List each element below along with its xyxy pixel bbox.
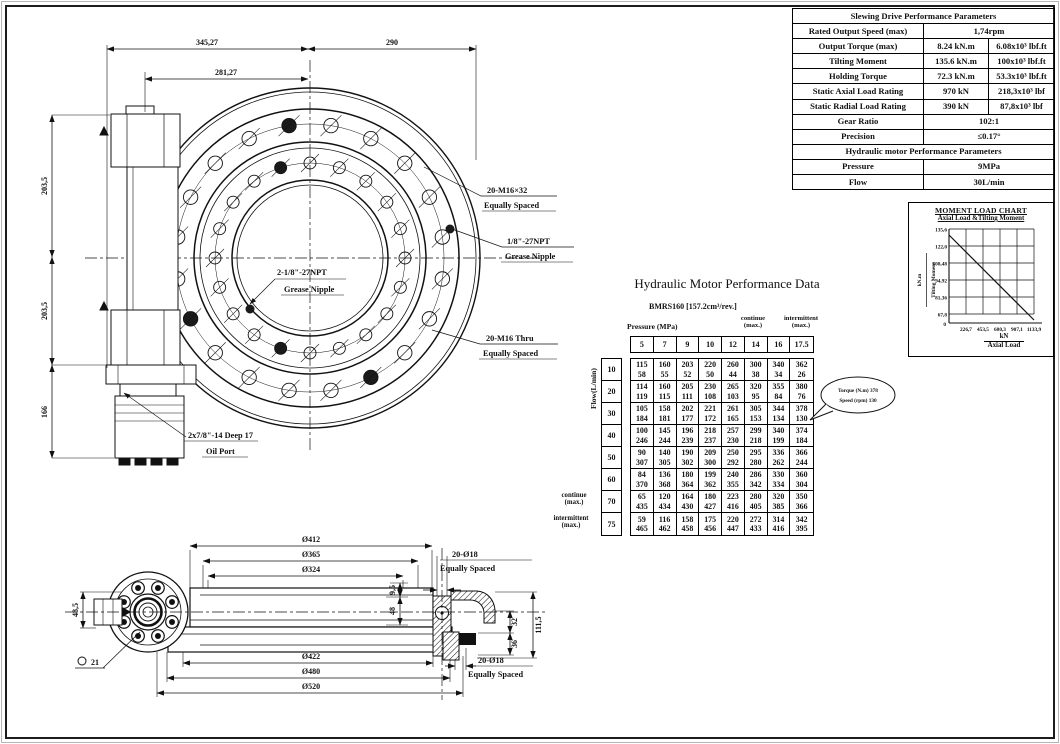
torque-value: 220 [704,360,716,369]
engineering-drawing-sheet: { "perf": { "title": "Slewing Drive Perf… [0,0,1060,744]
speed-value: 103 [727,392,739,401]
speed-value: 177 [681,414,693,423]
speed-value: 181 [659,414,671,423]
grid-cell: 180364 [677,469,700,491]
grid-cell: 202177 [677,403,700,425]
dim-412: Ø412 [302,535,320,544]
speed-value: 52 [683,370,691,379]
dim-324: Ø324 [302,565,320,574]
torque-value: 299 [750,426,762,435]
speed-value: 427 [704,502,716,511]
torque-value: 355 [772,382,784,391]
flow-cell: 30 [602,403,621,425]
callout-speed-text: Speed (rpm) 130 [839,397,877,404]
speed-value: 44 [729,370,737,379]
grid-cell: 145244 [654,425,677,447]
row-value-metric: 970 kN [924,84,989,99]
grid-cell: 35584 [768,381,791,403]
torque-value: 205 [681,382,693,391]
torque-value: 203 [681,360,693,369]
grid-cell: 205111 [677,381,700,403]
torque-value: 265 [727,382,739,391]
torque-value: 330 [772,470,784,479]
label-m16thru-spaced: Equally Spaced [483,349,538,358]
speed-value: 405 [750,502,762,511]
grid-cell: 261165 [722,403,745,425]
label-2018-top: 20-Ø18 [452,550,478,559]
grid-cell: 11558 [631,359,654,381]
label-npt1: 1/8"-27NPT [507,237,550,246]
speed-value: 237 [704,436,716,445]
row-label: Gear Ratio [793,114,924,129]
torque-speed-callout: Torque (N.m) 378 Speed (rpm) 130 [800,370,910,432]
pressure-header-row: 5791012141617.5 [630,336,814,353]
dim-290: 290 [386,38,398,47]
torque-value: 240 [727,470,739,479]
grid-cell: 265103 [722,381,745,403]
perf-table-subheader: Hydraulic motor Performance Parameters [793,144,1055,159]
label-npt1-nipple: Grease Nipple [505,252,556,261]
label-2018-bot: 20-Ø18 [478,656,504,665]
row-value-imperial: 87,8x10³ lbf [989,99,1055,114]
row-value-metric: 8.24 kN.m [924,39,989,54]
torque-value: 90 [638,448,646,457]
torque-value: 160 [659,360,671,369]
grid-cell: 100246 [631,425,654,447]
speed-value: 305 [659,458,671,467]
pressure-header-cell: 7 [654,337,677,352]
torque-value: 65 [638,492,646,501]
speed-value: 246 [636,436,648,445]
grid-cell: 116462 [654,513,677,535]
slewing-drive-top-view: 345,27 290 281,27 203,5 203,5 166 20-M16… [30,30,560,480]
speed-value: 218 [750,436,762,445]
motor-performance-grid: 1155816055203522205026044300383403436226… [630,358,814,536]
grid-cell: 220447 [722,513,745,535]
speed-value: 304 [796,480,808,489]
speed-value: 111 [682,392,693,401]
row-label: Flow [793,175,924,190]
row-value: 9MPa [924,159,1055,174]
row-label: Precision [793,129,924,144]
grid-cell: 366244 [790,447,813,469]
grid-cell: 20352 [677,359,700,381]
torque-value: 114 [636,382,647,391]
torque-value: 115 [636,360,647,369]
dim-422: Ø422 [302,652,320,661]
torque-value: 257 [727,426,739,435]
speed-value: 307 [636,458,648,467]
row-value-metric: 390 kN [924,99,989,114]
grid-cell: 22050 [699,359,722,381]
grid-cell: 158458 [677,513,700,535]
grid-cell: 199362 [699,469,722,491]
row-label: Static Radial Load Rating [793,99,924,114]
row-value-imperial: 100x10³ lbf.ft [989,54,1055,69]
grid-cell: 340199 [768,425,791,447]
torque-value: 320 [750,382,762,391]
torque-value: 221 [704,404,716,413]
dim-166: 166 [40,406,49,418]
speed-value: 230 [727,436,739,445]
grid-cell: 272433 [745,513,768,535]
pressure-header-cell: 17.5 [790,337,813,352]
torque-value: 342 [796,515,808,524]
pressure-header-cell: 10 [699,337,722,352]
speed-value: 430 [681,502,693,511]
grid-cell: 230108 [699,381,722,403]
row-value: 102:1 [924,114,1055,129]
row-value-imperial: 218,3x10³ lbf [989,84,1055,99]
grid-cell: 218237 [699,425,722,447]
label-oil-port: Oil Port [206,447,235,456]
speed-value: 58 [638,370,646,379]
speed-value: 55 [661,370,669,379]
motor-data-title: Hydraulic Motor Performance Data [622,276,832,292]
dim-520: Ø520 [302,682,320,691]
label-m16thru: 20-M16 Thru [486,334,534,343]
speed-value: 119 [636,392,647,401]
grid-cell: 280405 [745,491,768,513]
speed-value: 395 [796,524,808,533]
speed-value: 84 [774,392,782,401]
dim-345: 345,27 [196,38,218,47]
torque-value: 362 [796,360,808,369]
grid-cell: 240355 [722,469,745,491]
grid-cell: 84370 [631,469,654,491]
speed-value: 458 [681,524,693,533]
grid-cell: 209300 [699,447,722,469]
torque-value: 314 [772,515,784,524]
grid-cell: 314416 [768,513,791,535]
row-label: Pressure [793,159,924,174]
grid-cell: 16055 [654,359,677,381]
torque-value: 199 [704,470,716,479]
grid-cell: 257230 [722,425,745,447]
speed-value: 172 [704,414,716,423]
row-value: 1,74rpm [924,24,1055,39]
grid-cell: 180427 [699,491,722,513]
row-value-imperial: 6.08x10³ lbf.ft [989,39,1055,54]
torque-value: 260 [727,360,739,369]
grid-cell: 299218 [745,425,768,447]
grid-cell: 305153 [745,403,768,425]
speed-value: 368 [659,480,671,489]
row-value: 30L/min [924,175,1055,190]
dim-36: 36 [510,640,519,648]
speed-value: 38 [752,370,760,379]
speed-value: 108 [704,392,716,401]
torque-value: 59 [638,515,646,524]
grid-cell: 344134 [768,403,791,425]
torque-value: 286 [750,470,762,479]
torque-value: 84 [638,470,646,479]
svg-text:67,8: 67,8 [938,312,948,318]
speed-value: 416 [727,502,739,511]
torque-value: 320 [772,492,784,501]
row-label: Output Torque (max) [793,39,924,54]
speed-value: 364 [681,480,693,489]
dim-48: 48 [388,607,397,615]
callout-torque-text: Torque (N.m) 378 [838,387,878,394]
flow-axis-label: Flow(L/min) [589,368,598,409]
torque-value: 116 [659,515,670,524]
grid-cell: 196239 [677,425,700,447]
speed-value: 462 [659,524,671,533]
torque-value: 136 [659,470,671,479]
flow-column: 1020304050607075 [601,358,622,536]
speed-value: 435 [636,502,648,511]
speed-value: 153 [750,414,762,423]
svg-text:0: 0 [943,322,946,328]
grease-nipple-inner [246,305,255,314]
speed-value: 342 [750,480,762,489]
grid-cell: 90307 [631,447,654,469]
dim-281: 281,27 [215,68,237,77]
speed-value: 184 [636,414,648,423]
grid-cell: 65435 [631,491,654,513]
speed-value: 385 [772,502,784,511]
row-value-metric: 135.6 kN.m [924,54,989,69]
moment-chart-plot: 135,6122,0108,4894,9281,3667,80226,7453,… [909,225,1055,331]
speed-value: 355 [727,480,739,489]
label-npt2: 2-1/8"-27NPT [277,268,327,277]
chart-subtitle: Axial Load &Tilting Moment [909,215,1053,222]
torque-value: 218 [704,426,716,435]
speed-value: 50 [706,370,714,379]
torque-value: 261 [727,404,739,413]
speed-value: 199 [772,436,784,445]
dim-203a: 203,5 [40,177,49,195]
dim-32: 32 [510,618,519,626]
grid-cell: 164430 [677,491,700,513]
dim-111-5: 111,5 [534,616,543,633]
label-m16x32: 20-M16×32 [487,186,527,195]
grid-cell: 342395 [790,513,813,535]
row-value-imperial: 53.3x10³ lbf.ft [989,69,1055,84]
intermittent-max-row-label: intermittent(max.) [543,515,599,530]
perf-table-title: Slewing Drive Performance Parameters [793,9,1055,24]
torque-value: 230 [704,382,716,391]
grid-cell: 105184 [631,403,654,425]
chart-x-axis-label: kN Axial Load [977,333,1031,350]
grid-cell: 30038 [745,359,768,381]
flow-cell: 10 [602,359,621,381]
grid-cell: 136368 [654,469,677,491]
speed-value: 165 [727,414,739,423]
dim-48-5: 48,5 [71,603,80,617]
speed-value: 434 [659,502,671,511]
torque-value: 340 [772,360,784,369]
torque-value: 305 [750,404,762,413]
torque-value: 100 [636,426,648,435]
torque-value: 196 [681,426,693,435]
motor-model-label: BMRS160 [157.2cm³/rev.] [649,302,737,311]
grid-cell: 160115 [654,381,677,403]
speed-value: 302 [681,458,693,467]
pressure-header-cell: 9 [677,337,700,352]
torque-value: 120 [659,492,671,501]
torque-value: 164 [681,492,693,501]
torque-value: 295 [750,448,762,457]
torque-value: 220 [727,515,739,524]
torque-value: 350 [796,492,808,501]
label-m16x32-spaced: Equally Spaced [484,201,539,210]
speed-value: 262 [772,458,784,467]
torque-value: 360 [796,470,808,479]
svg-text:135,6: 135,6 [935,227,947,233]
speed-value: 134 [772,414,784,423]
grid-cell: 295280 [745,447,768,469]
flow-cell: 70 [602,491,621,513]
grid-cell: 250292 [722,447,745,469]
grid-cell: 360304 [790,469,813,491]
label-2018-bot-spaced: Equally Spaced [468,670,523,679]
speed-value: 456 [704,524,716,533]
pressure-header-cell: 12 [722,337,745,352]
torque-value: 180 [704,492,716,501]
torque-value: 280 [750,492,762,501]
torque-value: 340 [772,426,784,435]
speed-value: 447 [727,524,739,533]
torque-value: 202 [681,404,693,413]
x-axis-name: Axial Load [977,342,1031,350]
speed-value: 416 [772,524,784,533]
speed-value: 244 [796,458,808,467]
flow-cell: 20 [602,381,621,403]
svg-text:kN.m: kN.m [917,273,923,286]
grid-cell: 114119 [631,381,654,403]
row-label: Tilting Moment [793,54,924,69]
flow-cell: 60 [602,469,621,491]
torque-value: 223 [727,492,739,501]
pressure-axis-label: Pressure (MPa) [627,322,678,331]
grid-cell: 330334 [768,469,791,491]
slewing-performance-table: Slewing Drive Performance Parameters Rat… [792,8,1055,190]
grid-cell: 320385 [768,491,791,513]
torque-value: 344 [772,404,784,413]
torque-value: 366 [796,448,808,457]
torque-value: 160 [659,382,671,391]
svg-text:122,0: 122,0 [935,244,947,250]
label-2018-top-spaced: Equally Spaced [440,564,495,573]
grid-cell: 350366 [790,491,813,513]
torque-value: 190 [681,448,693,457]
pressure-header-cell: 14 [745,337,768,352]
label-oil-port-size: 2x7/8"-14 Deep 17 [188,431,253,440]
row-label: Static Axial Load Rating [793,84,924,99]
torque-value: 250 [727,448,739,457]
section-body [168,588,452,652]
flow-cell: 75 [602,513,621,535]
grid-cell: 190302 [677,447,700,469]
grid-cell: 336262 [768,447,791,469]
svg-text:226,7: 226,7 [960,327,972,333]
flow-cell: 50 [602,447,621,469]
chart-title: MOMENT LOAD CHART [909,206,1053,215]
intermittent-max-header: intermittent(max.) [772,315,830,330]
speed-value: 34 [774,370,782,379]
moment-load-chart: MOMENT LOAD CHART Axial Load &Tilting Mo… [908,202,1054,357]
grid-cell: 175456 [699,513,722,535]
row-label: Rated Output Speed (max) [793,24,924,39]
grid-cell: 140305 [654,447,677,469]
flow-cell: 40 [602,425,621,447]
speed-value: 280 [750,458,762,467]
speed-value: 292 [727,458,739,467]
torque-value: 145 [659,426,671,435]
torque-value: 180 [681,470,693,479]
dim-9-5: 9,5 [388,585,397,595]
grid-cell: 34034 [768,359,791,381]
speed-value: 95 [752,392,760,401]
torque-value: 158 [681,515,693,524]
torque-value: 209 [704,448,716,457]
svg-text:Tilting Moment: Tilting Moment [931,262,937,298]
dim-203b: 203,5 [40,302,49,320]
grid-cell: 120434 [654,491,677,513]
speed-value: 115 [659,392,670,401]
torque-value: 272 [750,515,762,524]
torque-value: 300 [750,360,762,369]
row-value-metric: 72.3 kN.m [924,69,989,84]
speed-value: 366 [796,502,808,511]
speed-value: 300 [704,458,716,467]
speed-value: 184 [796,436,808,445]
x-axis-unit: kN [984,333,1025,342]
torque-value: 175 [704,515,716,524]
grid-cell: 223416 [722,491,745,513]
row-label: Holding Torque [793,69,924,84]
continue-max-row-label: continue(max.) [551,492,597,507]
speed-value: 370 [636,480,648,489]
row-value: ≤0.17° [924,129,1055,144]
torque-value: 336 [772,448,784,457]
speed-value: 433 [750,524,762,533]
torque-value: 158 [659,404,671,413]
grid-cell: 158181 [654,403,677,425]
grid-cell: 59465 [631,513,654,535]
dim-21: 21 [91,658,99,667]
grid-cell: 286342 [745,469,768,491]
torque-value: 105 [636,404,648,413]
dim-480: Ø480 [302,667,320,676]
grid-cell: 32095 [745,381,768,403]
speed-value: 244 [659,436,671,445]
pressure-header-cell: 16 [768,337,791,352]
dim-365: Ø365 [302,550,320,559]
grid-cell: 26044 [722,359,745,381]
torque-value: 140 [659,448,671,457]
speed-value: 239 [681,436,693,445]
speed-value: 334 [772,480,784,489]
pressure-header-cell: 5 [631,337,654,352]
speed-value: 465 [636,524,648,533]
label-npt2-nipple: Grease Nipple [284,285,335,294]
speed-value: 362 [704,480,716,489]
grid-cell: 221172 [699,403,722,425]
continue-max-header: continue(max.) [731,315,775,330]
slewing-drive-section-view: Ø412 Ø365 Ø324 Ø422 Ø480 Ø520 48,5 111,5… [55,535,560,710]
grease-nipple-outer [446,225,455,234]
